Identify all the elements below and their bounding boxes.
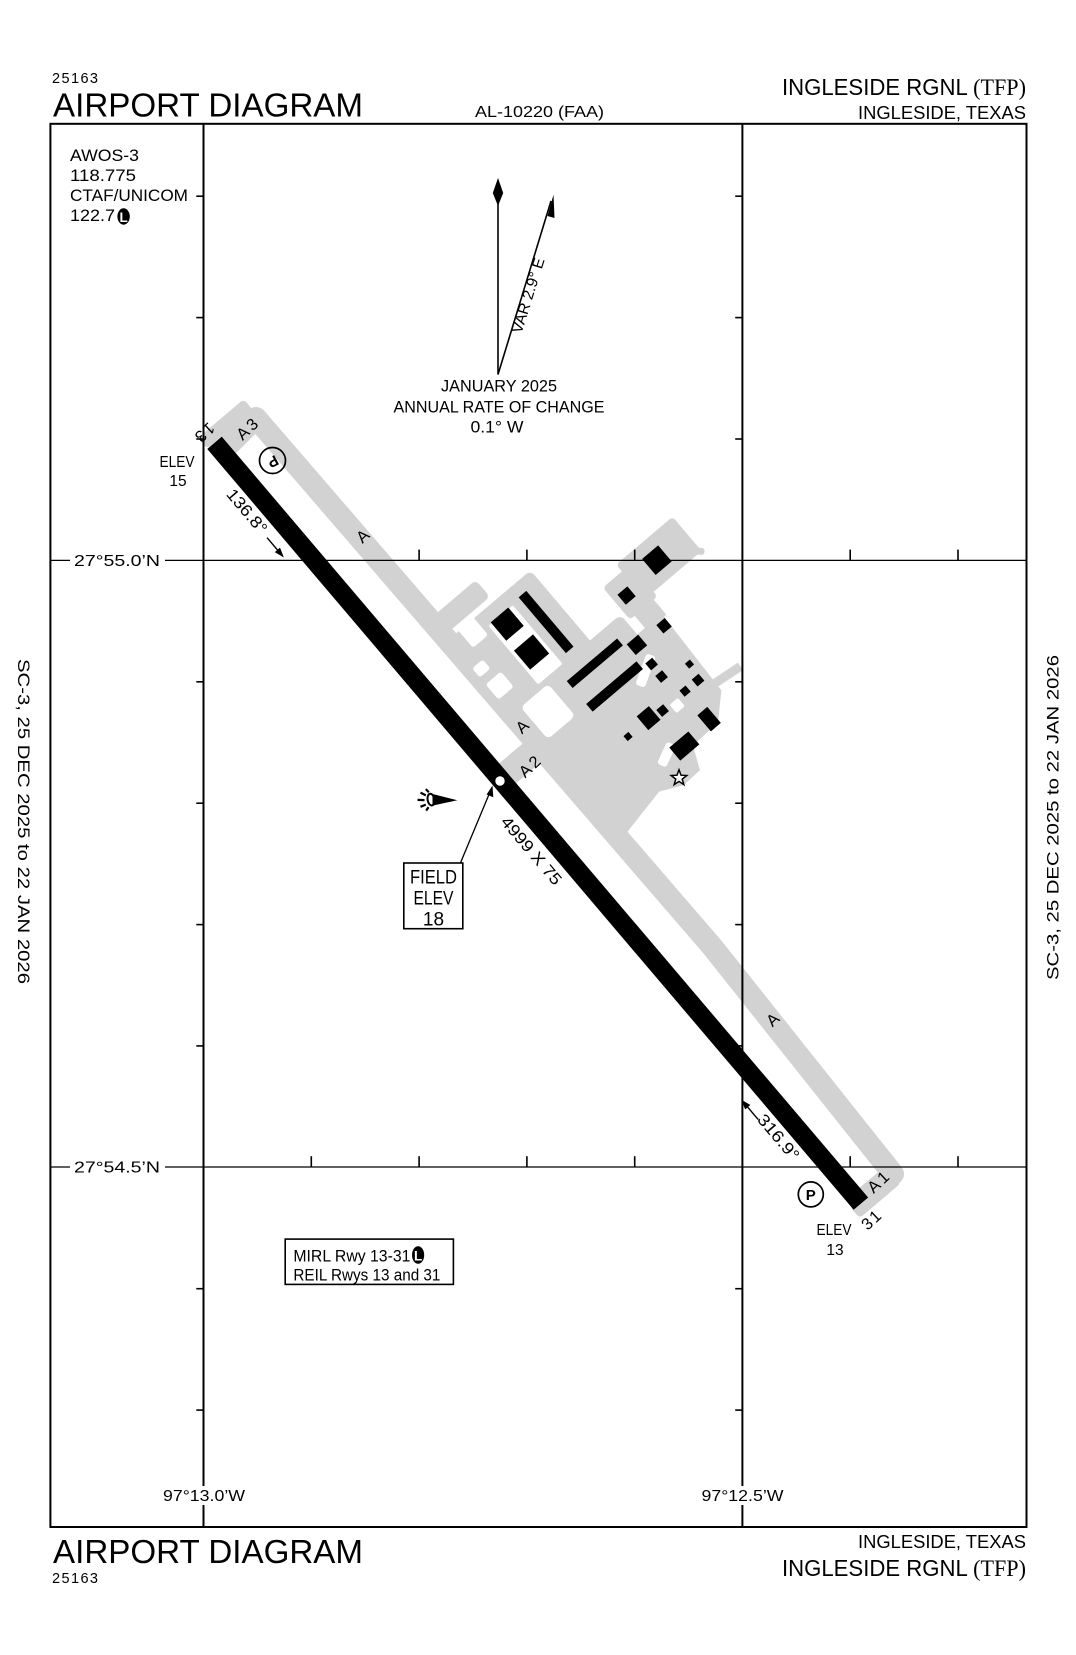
svg-text:ANNUAL RATE OF CHANGE: ANNUAL RATE OF CHANGE: [394, 399, 605, 417]
svg-text:INGLESIDE, TEXAS: INGLESIDE, TEXAS: [858, 1531, 1026, 1552]
svg-text:SC-3, 25 DEC 2025 to 22 JAN: SC-3, 25 DEC 2025 to 22 JAN 2026: [1044, 655, 1063, 980]
svg-text:97°13.0’W: 97°13.0’W: [163, 1488, 245, 1505]
svg-text:27°55.0’N: 27°55.0’N: [74, 553, 160, 570]
svg-text:27°54.5’N: 27°54.5’N: [74, 1160, 160, 1177]
svg-text:122.7: 122.7: [70, 207, 115, 225]
svg-text:INGLESIDE, TEXAS: INGLESIDE, TEXAS: [858, 102, 1026, 123]
svg-text:25163: 25163: [52, 1571, 98, 1587]
svg-text:SC-3, 25 DEC 2025 to 22 JAN: SC-3, 25 DEC 2025 to 22 JAN 2026: [14, 659, 33, 984]
svg-text:ELEV: ELEV: [414, 889, 454, 910]
svg-text:INGLESIDE RGNL (TFP): INGLESIDE RGNL (TFP): [782, 74, 1026, 100]
svg-text:CTAF/UNICOM: CTAF/UNICOM: [70, 187, 188, 205]
svg-text:AL-10220 (FAA): AL-10220 (FAA): [475, 104, 604, 121]
svg-text:AWOS-3: AWOS-3: [70, 147, 139, 165]
svg-text:MIRL Rwy 13-31: MIRL Rwy 13-31: [293, 1247, 410, 1266]
svg-text:97°12.5’W: 97°12.5’W: [702, 1488, 784, 1505]
svg-text:118.775: 118.775: [70, 167, 136, 185]
svg-text:15: 15: [169, 473, 186, 490]
svg-text:INGLESIDE RGNL (TFP): INGLESIDE RGNL (TFP): [782, 1555, 1026, 1581]
svg-text:JANUARY 2025: JANUARY 2025: [441, 378, 557, 396]
svg-text:13: 13: [826, 1242, 843, 1259]
svg-text:18: 18: [423, 910, 444, 931]
svg-text:FIELD: FIELD: [410, 868, 457, 889]
svg-text:ELEV: ELEV: [817, 1222, 853, 1239]
svg-text:AIRPORT DIAGRAM: AIRPORT DIAGRAM: [53, 1534, 363, 1571]
svg-text:AIRPORT DIAGRAM: AIRPORT DIAGRAM: [53, 88, 363, 125]
svg-text:25163: 25163: [52, 71, 98, 87]
svg-text:0.1° W: 0.1° W: [471, 419, 524, 437]
svg-text:ELEV: ELEV: [160, 454, 196, 471]
svg-text:P: P: [806, 1187, 816, 1204]
svg-text:L: L: [119, 210, 127, 225]
svg-text:L: L: [414, 1248, 422, 1263]
svg-text:REIL Rwys 13 and 31: REIL Rwys 13 and 31: [293, 1266, 440, 1285]
